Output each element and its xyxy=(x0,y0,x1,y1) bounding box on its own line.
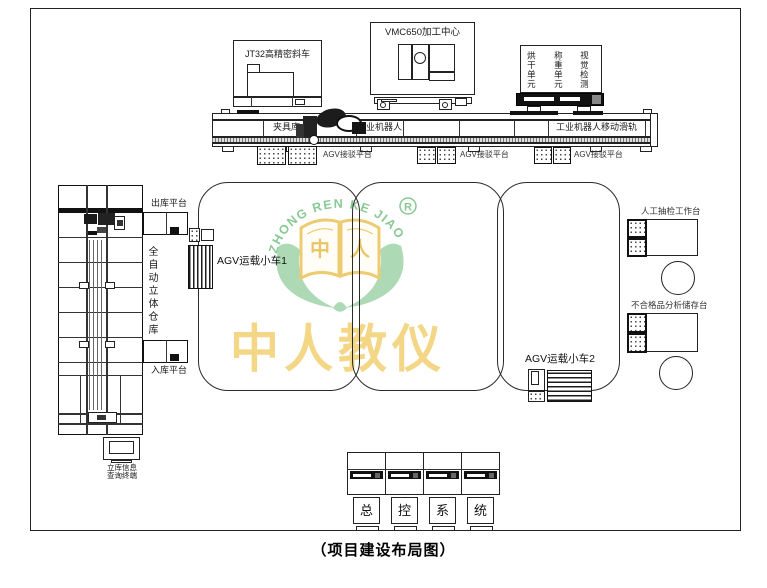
stacker-crane-part xyxy=(88,231,97,235)
console-chair: 控 xyxy=(391,497,418,524)
agv-dock-pad xyxy=(534,147,552,164)
divider xyxy=(292,97,293,107)
vmc-machine-part xyxy=(398,44,412,80)
console-monitor-knob xyxy=(375,473,380,478)
divider xyxy=(514,120,515,137)
unit-conveyor-slot xyxy=(524,97,554,101)
divider xyxy=(166,212,167,235)
dry-unit-label: 烘干单元 xyxy=(526,48,535,92)
weigh-unit-label: 称重单元 xyxy=(553,48,562,92)
agv-cart2-unit-inner xyxy=(531,371,539,385)
robot-link-icon xyxy=(296,124,304,138)
console-monitor-slot xyxy=(391,474,409,477)
console-monitor-knob xyxy=(489,473,494,478)
stacker-crane-part xyxy=(84,214,97,224)
vmc-spindle-icon xyxy=(414,52,426,64)
rail-carriage-bar xyxy=(237,110,259,114)
rail-end-cap xyxy=(650,113,658,147)
lathe-inner-shape xyxy=(247,72,294,97)
warehouse-bottom-detail xyxy=(97,415,106,420)
divider xyxy=(120,375,121,423)
agv-cart1-accessory xyxy=(189,228,200,242)
warehouse-name-label: 全自动立体仓库 xyxy=(146,240,157,342)
console-monitor-knob xyxy=(451,473,456,478)
diagram-caption: （项目建设布局图） xyxy=(251,539,516,560)
console-chair: 总 xyxy=(353,497,380,524)
query-terminal-screen xyxy=(109,441,134,454)
defect-storage-rack xyxy=(627,333,647,353)
vision-unit-label: 视觉检测 xyxy=(579,48,588,92)
shelf-line xyxy=(58,423,143,425)
elevator-rails xyxy=(89,240,105,410)
vmc-base-slot xyxy=(381,99,397,102)
manual-check-stool xyxy=(661,261,695,295)
divider xyxy=(166,340,167,363)
lathe-label: JT32高精密斜车 xyxy=(233,50,322,60)
rail-carriage-bar xyxy=(573,111,603,115)
rail-foot xyxy=(222,146,234,152)
console-desk-line xyxy=(423,469,462,470)
lathe-base-detail xyxy=(295,99,305,105)
console-chair-base xyxy=(394,526,417,531)
agv-cart1-accessory xyxy=(201,229,214,241)
manual-check-rack xyxy=(627,219,647,238)
robot-base-icon xyxy=(309,135,319,145)
console-chair-base xyxy=(432,526,455,531)
unit-conveyor-slot xyxy=(560,97,580,101)
console-chair: 统 xyxy=(467,497,494,524)
agv-dock-pad xyxy=(288,146,317,165)
lathe-base-band xyxy=(233,97,322,107)
agv-dock-label: AGV接驳平台 xyxy=(460,151,509,160)
defect-storage-rack xyxy=(627,313,647,333)
console-monitor-slot xyxy=(467,474,485,477)
vmc-foot-roller-icon xyxy=(380,102,386,108)
divider xyxy=(645,120,646,137)
agv-cart1 xyxy=(188,245,213,289)
robot-gripper-icon xyxy=(352,122,366,134)
rail-end-block xyxy=(221,109,230,114)
console-chair: 系 xyxy=(429,497,456,524)
console-desk-line xyxy=(347,469,386,470)
console-desk-line xyxy=(385,469,424,470)
agv-cart2-unit-base xyxy=(528,391,545,402)
query-terminal-label: 立库信息 查询终端 xyxy=(98,464,146,481)
agv-track-loop-2 xyxy=(352,182,504,391)
shaft-connector xyxy=(79,341,89,348)
agv-cart1-label: AGV运载小车1 xyxy=(217,253,287,268)
defect-storage-label: 不合格品分析储存台 xyxy=(631,301,708,310)
vmc-machine-part xyxy=(429,44,455,72)
robot-slide-rail-label: 工业机器人移动滑轨 xyxy=(548,123,645,133)
vmc-foot-roller-icon xyxy=(442,102,448,108)
vmc-label: VMC650加工中心 xyxy=(370,28,475,38)
manual-check-rack xyxy=(627,238,647,257)
stacker-crane-part xyxy=(97,227,106,233)
agv-track-loop-1 xyxy=(198,182,360,391)
rail-carriage-bar xyxy=(510,111,558,115)
divider xyxy=(251,97,252,107)
query-terminal-label-line2: 查询终端 xyxy=(98,472,146,480)
shelf-line xyxy=(58,237,143,238)
console-desk-line xyxy=(461,469,500,470)
inbound-platform-block xyxy=(170,354,179,361)
vmc-base-detail xyxy=(455,98,467,106)
agv-dock-pad xyxy=(257,146,286,165)
shaft-connector xyxy=(105,341,115,348)
agv-cart2 xyxy=(547,370,592,402)
vmc-machine-part xyxy=(429,72,455,81)
outbound-platform-block xyxy=(170,227,179,234)
shaft-connector xyxy=(79,282,89,289)
console-monitor-knob xyxy=(413,473,418,478)
stacker-crane-part xyxy=(98,213,115,225)
inbound-platform-label: 入库平台 xyxy=(146,366,192,376)
unit-conveyor-knob xyxy=(592,95,601,104)
console-chair-base xyxy=(470,526,493,531)
divider xyxy=(80,375,81,423)
outbound-platform-label: 出库平台 xyxy=(147,199,191,209)
manual-check-label: 人工抽检工作台 xyxy=(641,207,701,216)
rail-foot xyxy=(640,146,652,152)
agv-dock-pad xyxy=(437,147,456,164)
agv-dock-pad xyxy=(417,147,436,164)
console-chair-base xyxy=(356,526,379,531)
stacker-crane-part xyxy=(117,220,123,226)
agv-dock-pad xyxy=(553,147,571,164)
agv-dock-label: AGV接驳平台 xyxy=(574,151,623,160)
divider xyxy=(403,120,404,137)
console-monitor-slot xyxy=(429,474,447,477)
lathe-inner-step xyxy=(247,64,260,73)
divider xyxy=(459,120,460,137)
agv-dock-label: AGV接驳平台 xyxy=(323,151,372,160)
shaft-connector xyxy=(105,282,115,289)
console-monitor-slot xyxy=(353,474,371,477)
defect-storage-stool xyxy=(659,356,693,390)
agv-cart2-label: AGV运载小车2 xyxy=(525,351,595,366)
